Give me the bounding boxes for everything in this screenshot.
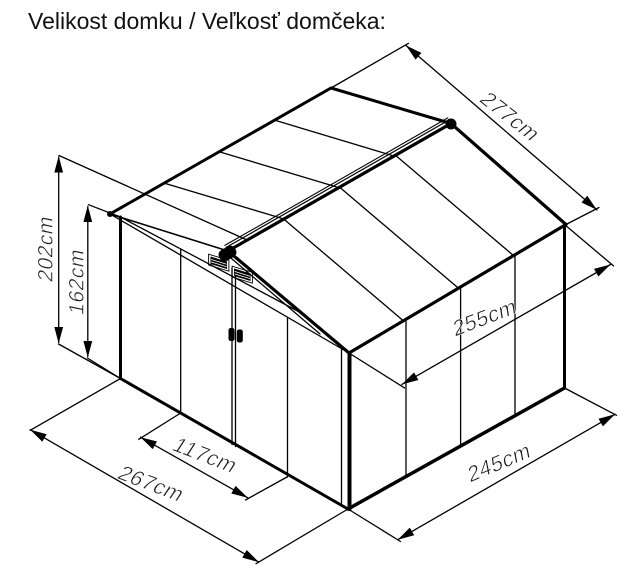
svg-text:245cm: 245cm xyxy=(466,437,533,488)
svg-text:202cm: 202cm xyxy=(35,214,58,284)
svg-text:277cm: 277cm xyxy=(474,88,546,146)
svg-text:Velikost domku / Veľkosť domče: Velikost domku / Veľkosť domčeka: xyxy=(28,8,386,34)
svg-text:162cm: 162cm xyxy=(66,247,89,317)
svg-text:255cm: 255cm xyxy=(451,293,518,342)
